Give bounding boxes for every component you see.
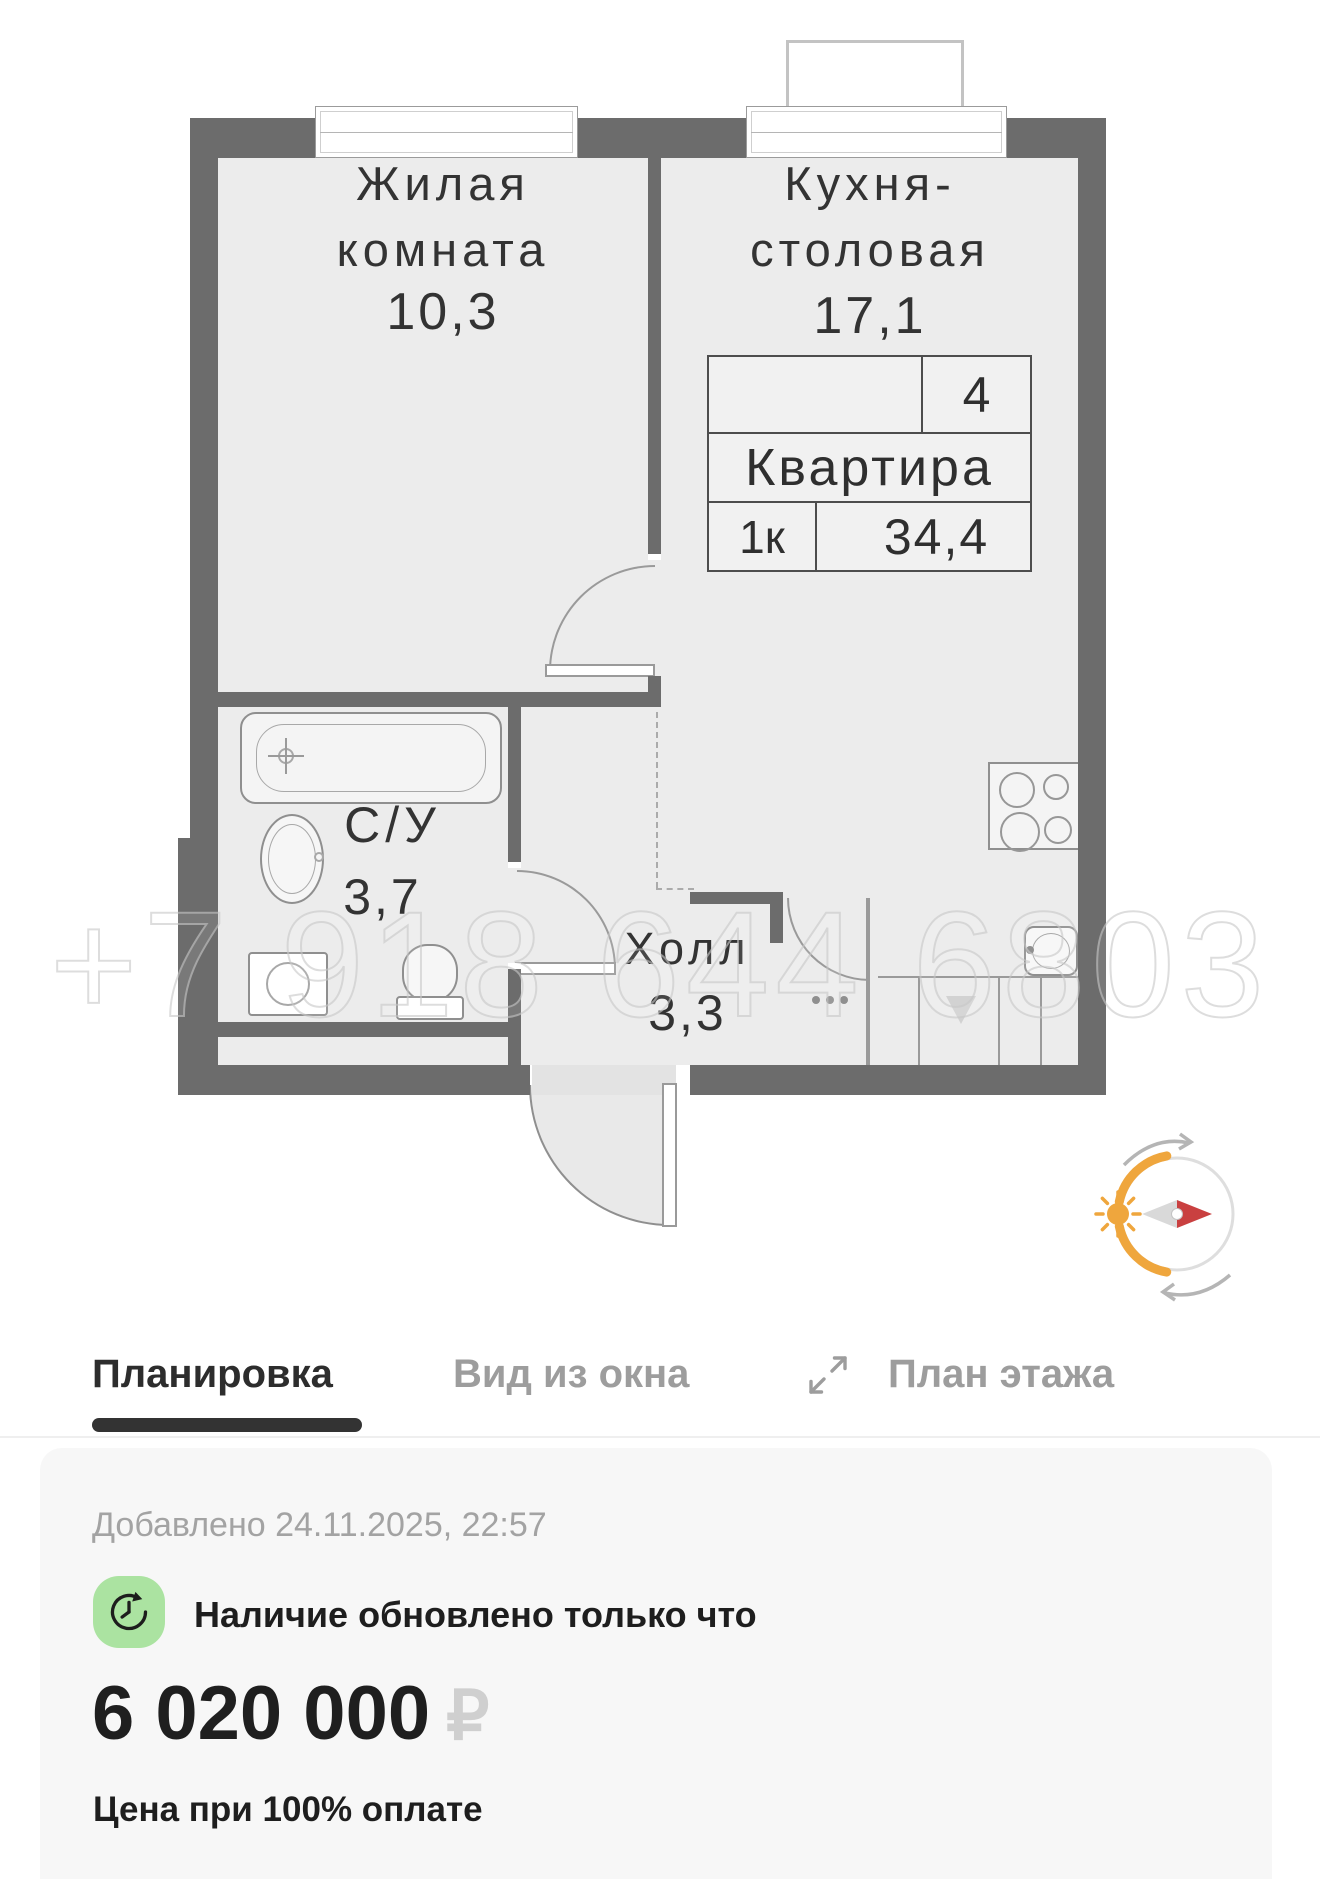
price-note: Цена при 100% оплате — [93, 1790, 483, 1830]
room-label-kitchen-1: Кухня- — [680, 160, 1060, 207]
expand-icon[interactable] — [805, 1352, 851, 1398]
listing-info-card: Добавлено 24.11.2025, 22:57 Наличие обно… — [40, 1448, 1272, 1879]
wall-segment — [508, 707, 521, 868]
vent-dot — [826, 996, 834, 1004]
wall-segment — [690, 1065, 1106, 1095]
wall-segment — [190, 1065, 530, 1095]
room-area-hall: 3,3 — [595, 988, 780, 1038]
room-label-hall: Холл — [590, 926, 785, 971]
table-row-title: Квартира — [709, 432, 1030, 503]
faucet-line — [285, 738, 287, 774]
tabs-divider — [0, 1436, 1320, 1438]
vent-dot — [812, 996, 820, 1004]
price-value: 6 020 000 — [92, 1671, 430, 1756]
tab-floor-plan[interactable]: План этажа — [888, 1352, 1114, 1397]
added-date: Добавлено 24.11.2025, 22:57 — [92, 1506, 547, 1545]
wall-cap — [508, 862, 521, 868]
wall-segment — [648, 158, 661, 560]
zone-dashed-line — [656, 712, 658, 888]
rooms-count: 1к — [709, 503, 817, 570]
window — [315, 106, 578, 158]
wall-cap — [648, 554, 661, 560]
room-label-kitchen-2: столовая — [680, 226, 1060, 273]
sink-2-tap-icon — [1026, 946, 1034, 954]
wall-segment — [190, 1022, 521, 1037]
wall-segment — [178, 838, 190, 1095]
tab-layout[interactable]: Планировка — [92, 1352, 333, 1397]
availability-updated-icon — [93, 1576, 165, 1648]
stove-burner — [999, 772, 1035, 808]
toilet-tank — [396, 996, 464, 1020]
entrance-door-arc — [529, 1085, 670, 1226]
cabinet-line — [878, 976, 1078, 978]
room-area-bathroom: 3,7 — [290, 872, 475, 922]
stove-burner — [1044, 816, 1072, 844]
floor-plan-image: Жилая комната 10,3 Кухня- столовая 17,1 … — [0, 0, 1320, 1320]
sink-2-inner — [1032, 933, 1070, 969]
cabinet-line — [998, 978, 1000, 1065]
table-row: 1к 34,4 — [709, 503, 1030, 570]
refresh-clock-icon — [107, 1590, 151, 1634]
zone-dashed-line — [656, 888, 694, 890]
ruble-sign: ₽ — [446, 1678, 489, 1754]
door-leaf — [545, 664, 655, 677]
door-swing-marker — [946, 996, 976, 1024]
washing-machine-drum — [266, 962, 310, 1006]
cabinet-line — [1040, 978, 1042, 1065]
price-row: 6 020 000₽ — [92, 1670, 489, 1757]
entrance-threshold — [532, 1065, 676, 1095]
cabinet-line — [918, 978, 920, 1065]
table-row: 4 — [709, 357, 1030, 432]
vent-dot — [840, 996, 848, 1004]
room-area-kitchen: 17,1 — [680, 290, 1060, 342]
wall-segment — [218, 692, 661, 707]
wall-segment — [1078, 158, 1106, 1095]
listing-page: Жилая комната 10,3 Кухня- столовая 17,1 … — [0, 0, 1320, 1879]
stove-burner — [1000, 812, 1040, 852]
wall-cap — [508, 963, 521, 969]
floor-number: 4 — [921, 357, 1030, 432]
sink-tap-icon — [314, 852, 324, 862]
room-label-living-1: Жилая — [258, 160, 628, 207]
room-label-bathroom: С/У — [300, 800, 485, 850]
toilet-bowl — [402, 944, 458, 1002]
compass-icon — [1092, 1125, 1262, 1325]
wall-segment — [508, 969, 521, 1065]
room-label-living-2: комната — [258, 226, 628, 273]
wall-segment — [190, 158, 218, 1095]
balcony — [786, 40, 964, 112]
stove-burner — [1043, 774, 1069, 800]
apartment-info-table: 4 Квартира 1к 34,4 — [707, 355, 1032, 572]
window — [746, 106, 1007, 158]
entrance-door-leaf — [662, 1083, 677, 1227]
tab-window-view[interactable]: Вид из окна — [453, 1352, 689, 1397]
total-area: 34,4 — [817, 503, 1030, 570]
availability-status: Наличие обновлено только что — [194, 1594, 757, 1636]
active-tab-indicator — [92, 1418, 362, 1432]
room-area-living: 10,3 — [258, 286, 628, 338]
